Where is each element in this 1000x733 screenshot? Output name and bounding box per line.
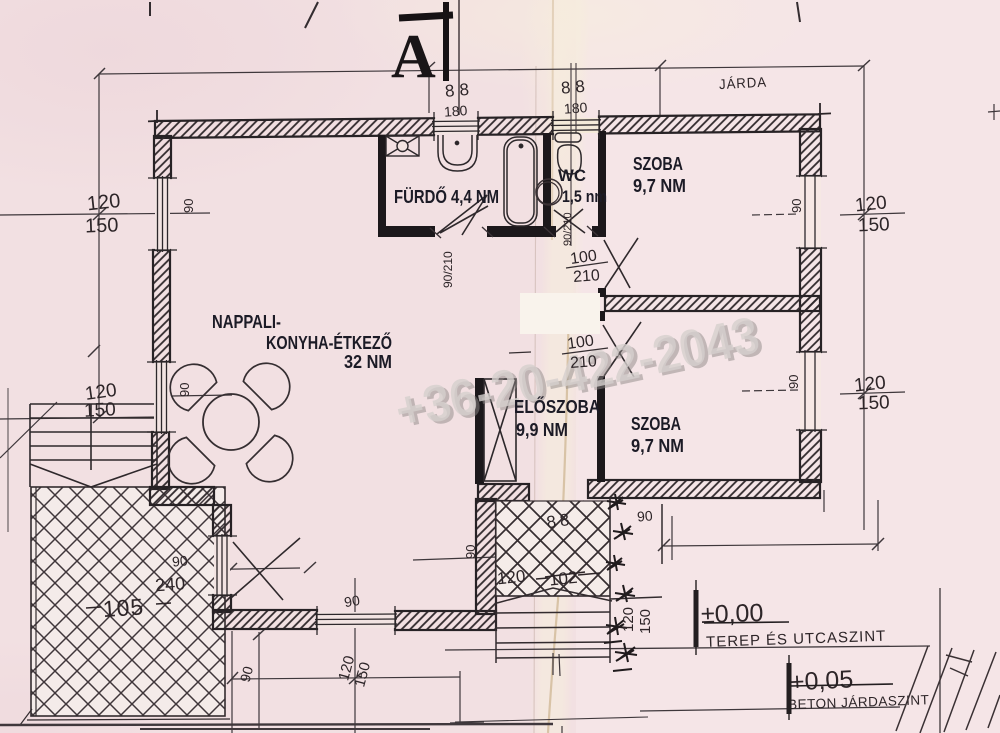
svg-text:ELŐSZOBA: ELŐSZOBA <box>514 396 600 417</box>
svg-text:150: 150 <box>85 214 119 237</box>
svg-text:90: 90 <box>636 507 653 524</box>
svg-text:90: 90 <box>343 592 361 610</box>
svg-text:9,9 NM: 9,9 NM <box>516 419 568 440</box>
svg-text:210: 210 <box>573 267 601 286</box>
svg-text:90: 90 <box>789 199 804 213</box>
svg-text:JÁRDA: JÁRDA <box>719 74 768 92</box>
svg-text:180: 180 <box>563 99 588 117</box>
svg-text:SZOBA: SZOBA <box>633 153 683 174</box>
svg-text:88: 88 <box>560 76 590 97</box>
svg-text:90: 90 <box>786 375 801 389</box>
svg-text:180: 180 <box>443 102 468 120</box>
svg-text:88: 88 <box>444 79 474 100</box>
svg-text:SZOBA: SZOBA <box>631 413 681 434</box>
svg-text:±0,00: ±0,00 <box>700 599 763 629</box>
svg-text:105: 105 <box>102 593 145 622</box>
svg-text:120: 120 <box>620 607 637 632</box>
svg-text:KONYHA-ÉTKEZŐ: KONYHA-ÉTKEZŐ <box>266 332 392 353</box>
svg-text:150: 150 <box>83 399 116 422</box>
svg-text:90: 90 <box>177 383 192 397</box>
svg-text:FÜRDŐ 4,4 NM: FÜRDŐ 4,4 NM <box>394 186 499 207</box>
svg-text:120: 120 <box>854 192 888 216</box>
svg-text:NAPPALI-: NAPPALI- <box>212 311 281 332</box>
svg-text:102: 102 <box>548 568 578 590</box>
svg-text:210: 210 <box>570 353 598 372</box>
svg-text:150: 150 <box>637 609 654 634</box>
svg-text:9,7 NM: 9,7 NM <box>631 435 684 456</box>
svg-text:+0,05: +0,05 <box>789 665 854 696</box>
svg-text:9,7 NM: 9,7 NM <box>633 175 686 196</box>
svg-text:32 NM: 32 NM <box>344 351 392 372</box>
svg-text:90: 90 <box>463 545 478 559</box>
svg-text:90: 90 <box>181 199 196 213</box>
svg-text:WC: WC <box>558 167 586 185</box>
svg-text:240: 240 <box>154 573 185 595</box>
svg-text:150: 150 <box>858 214 890 236</box>
svg-text:90/210: 90/210 <box>562 212 574 246</box>
svg-text:A: A <box>391 23 436 91</box>
svg-text:1,5 nm: 1,5 nm <box>562 188 607 206</box>
svg-text:90: 90 <box>171 552 188 570</box>
svg-text:120: 120 <box>496 566 526 588</box>
svg-text:88: 88 <box>545 510 574 533</box>
svg-text:150: 150 <box>858 392 890 414</box>
svg-text:120: 120 <box>86 190 121 215</box>
svg-text:90/210: 90/210 <box>441 251 455 288</box>
